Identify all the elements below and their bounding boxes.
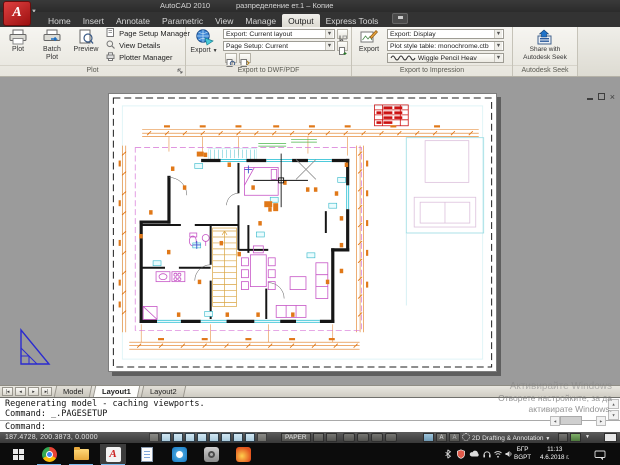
ucs-icon <box>14 327 52 367</box>
select-objects-icon[interactable] <box>337 29 348 39</box>
export-impression-panel: Export Export: Display▼ Plot style table… <box>352 27 513 76</box>
chevron-down-icon[interactable]: ▼ <box>494 54 502 62</box>
printer-icon <box>9 29 27 45</box>
lineweight-toggle[interactable] <box>245 433 255 442</box>
coordinate-readout[interactable]: 187.4728, 200.3873, 0.0000 <box>5 434 98 441</box>
scroll-right-icon[interactable]: ▸ <box>596 416 606 426</box>
plot-panel: Plot Batch Plot <box>0 27 186 76</box>
prev-tab-button[interactable]: ◂ <box>15 387 26 396</box>
app-title: AutoCAD 2010 <box>160 0 210 12</box>
autocad-window: AutoCAD 2010 разпределение ет.1 – Копие … <box>0 0 620 465</box>
export-dwf-pdf-panel: Export ▼ Export: Current layout▼ Page Se… <box>186 27 352 76</box>
stairs <box>213 228 237 306</box>
drawing-window-controls: × <box>587 93 615 102</box>
headset-icon[interactable] <box>482 449 492 459</box>
tab-output[interactable]: Output <box>282 14 320 27</box>
export-settings-icon[interactable] <box>239 53 251 63</box>
status-menu-chevron-icon[interactable]: ▼ <box>585 434 590 440</box>
scroll-left-icon[interactable]: ◂ <box>550 416 560 426</box>
pan-icon[interactable] <box>343 433 355 442</box>
tab-layout2[interactable]: Layout2 <box>141 386 186 397</box>
page-setup-manager-item[interactable]: Page Setup Manager <box>106 28 190 40</box>
onedrive-cloud-icon[interactable] <box>469 449 480 459</box>
batch-plot-button[interactable]: Batch Plot <box>36 28 68 62</box>
picture-pencil-icon <box>360 29 378 45</box>
export-dwf-panel-footer[interactable]: Export to DWF/PDF <box>186 65 351 76</box>
restore-icon[interactable] <box>598 93 605 100</box>
plot-panel-footer[interactable]: Plot <box>0 65 185 76</box>
status-bar: 187.4728, 200.3873, 0.0000 PAPER A A 2D … <box>0 432 620 443</box>
view-details-item[interactable]: View Details <box>106 40 160 52</box>
osnap-toggle[interactable] <box>197 433 207 442</box>
tab-express-tools[interactable]: Express Tools <box>320 14 385 27</box>
share-with-autodesk-seek-button[interactable]: Share with Autodesk Seek <box>515 28 575 62</box>
command-window[interactable]: Regenerating model - caching viewports. … <box>0 397 620 432</box>
wiggle-line-icon <box>390 54 416 62</box>
taskbar-explorer-icon[interactable] <box>68 444 94 464</box>
language-indicator[interactable]: БГРBGPT <box>514 446 531 462</box>
batch-plot-icon <box>43 29 61 45</box>
last-tab-button[interactable]: ▸| <box>41 387 52 396</box>
taskbar-messenger-icon[interactable] <box>166 444 192 464</box>
impression-export-dropdown[interactable]: Export: Display▼ <box>387 29 504 39</box>
taskbar-notepad-icon[interactable] <box>134 444 160 464</box>
chevron-down-icon[interactable]: ▼ <box>494 42 502 50</box>
taskbar-clock[interactable]: 11:134.6.2018 г. <box>540 446 570 462</box>
layout-paper[interactable] <box>108 93 497 372</box>
chevron-down-icon[interactable]: ▼ <box>325 42 333 50</box>
close-icon[interactable]: × <box>610 93 615 102</box>
plot-button[interactable]: Plot <box>3 28 33 54</box>
drawing-area[interactable]: × <box>0 77 620 385</box>
annotation-visibility-icon[interactable] <box>423 433 434 442</box>
showmotion-icon[interactable] <box>385 433 397 442</box>
export-impression-panel-footer[interactable]: Export to Impression <box>352 65 512 76</box>
clean-screen-button[interactable] <box>604 433 617 442</box>
chevron-down-icon[interactable]: ▼ <box>325 30 333 38</box>
paper-model-button[interactable]: PAPER <box>281 433 311 442</box>
tab-layout1[interactable]: Layout1 <box>93 386 140 397</box>
tab-parametric[interactable]: Parametric <box>156 14 209 27</box>
tab-insert[interactable]: Insert <box>77 14 110 27</box>
taskbar-chrome-icon[interactable] <box>36 444 62 464</box>
quick-properties-toggle[interactable] <box>257 433 267 442</box>
dimension-ticks <box>122 131 473 347</box>
ribbon-filler <box>578 27 620 76</box>
page-setup-manager-icon <box>106 28 115 37</box>
ribbon-tab-bar: Home Insert Annotate Parametric View Man… <box>0 12 620 27</box>
plotter-manager-icon <box>106 52 115 61</box>
polar-toggle[interactable] <box>185 433 195 442</box>
quick-view-layouts-icon[interactable] <box>313 433 324 442</box>
autoscale-icon[interactable]: A <box>436 433 447 442</box>
layout-tab-bar: |◂ ◂ ▸ ▸| Model Layout1 Layout2 <box>0 385 620 397</box>
red-title-block <box>374 105 408 126</box>
pen-style-dropdown[interactable]: Wiggle Pencil Heav▼ <box>387 53 504 63</box>
command-prompt[interactable]: Command: <box>5 422 46 432</box>
zoom-icon[interactable] <box>357 433 369 442</box>
grid-toggle[interactable] <box>161 433 171 442</box>
windows-logo-icon <box>13 449 24 460</box>
command-history-line: Command: _.PAGESETUP <box>5 409 107 419</box>
tab-manage[interactable]: Manage <box>239 14 282 27</box>
preview-button[interactable]: Preview <box>70 28 102 54</box>
add-page-icon[interactable] <box>337 41 348 51</box>
tab-home[interactable]: Home <box>42 14 77 27</box>
scroll-up-icon[interactable]: ▴ <box>608 399 619 409</box>
taskbar-gray-app-icon[interactable] <box>198 444 224 464</box>
volume-icon[interactable] <box>504 449 514 459</box>
export-impression-button[interactable]: Export <box>354 28 384 54</box>
command-vscrollbar[interactable]: ▴ ▾ <box>608 399 619 420</box>
command-hscrollbar[interactable]: ◂ ▸ <box>550 416 606 425</box>
toolbar-lock-icon[interactable] <box>558 433 568 442</box>
workspace-switcher[interactable]: 2D Drafting & Annotation ▼ <box>462 433 550 442</box>
taskbar-orange-app-icon[interactable] <box>230 444 256 464</box>
plotter-manager-item[interactable]: Plotter Manager <box>106 52 172 64</box>
skylight-cross <box>296 160 316 180</box>
scroll-down-icon[interactable]: ▾ <box>608 410 619 420</box>
start-button[interactable] <box>5 443 31 465</box>
autodesk-seek-icon <box>535 29 555 45</box>
bluetooth-icon[interactable] <box>443 449 453 459</box>
command-splitter[interactable] <box>0 420 620 421</box>
application-menu-button[interactable]: A <box>3 1 31 26</box>
floor-plan-drawing <box>109 94 496 371</box>
ducs-toggle[interactable] <box>221 433 231 442</box>
steering-wheel-icon[interactable] <box>371 433 383 442</box>
ribbon-minimize-button[interactable] <box>392 13 408 24</box>
autodesk-seek-panel: Share with Autodesk Seek Autodesk Seek <box>513 27 578 76</box>
minimize-icon[interactable] <box>587 93 593 100</box>
annotation-scale-icon[interactable]: A <box>449 433 460 442</box>
scroll-thumb[interactable] <box>560 416 582 425</box>
document-title: разпределение ет.1 – Копие <box>236 0 333 12</box>
workspace-gear-icon <box>462 433 470 441</box>
export-globe-icon <box>195 29 214 46</box>
otrack-toggle[interactable] <box>209 433 219 442</box>
first-tab-button[interactable]: |◂ <box>2 387 13 396</box>
detail-viewport <box>406 138 483 306</box>
view-details-icon <box>106 40 115 49</box>
dimension-text-marks <box>119 125 440 340</box>
dyn-toggle[interactable] <box>233 433 243 442</box>
next-tab-button[interactable]: ▸ <box>28 387 39 396</box>
level-markers <box>193 165 253 248</box>
action-center-icon[interactable] <box>594 450 606 460</box>
export-dwf-button[interactable]: Export ▼ <box>188 28 220 55</box>
ortho-toggle[interactable] <box>173 433 183 442</box>
status-tray-icon[interactable] <box>570 433 581 442</box>
tab-view[interactable]: View <box>209 14 239 27</box>
dialog-launcher-icon[interactable] <box>177 68 183 74</box>
tab-annotate[interactable]: Annotate <box>110 14 156 27</box>
security-shield-icon[interactable] <box>456 449 466 459</box>
snap-toggle[interactable] <box>149 433 159 442</box>
export-target-dropdown[interactable]: Export: Current layout▼ <box>223 29 335 39</box>
preview-dwf-icon[interactable] <box>225 53 237 63</box>
autodesk-seek-panel-footer[interactable]: Autodesk Seek <box>513 65 577 76</box>
titlebar: AutoCAD 2010 разпределение ет.1 – Копие <box>0 0 620 12</box>
command-history-line: Regenerating model - caching viewports. <box>5 399 205 409</box>
taskbar-autocad-icon[interactable]: A <box>100 444 126 464</box>
page-setup-dropdown[interactable]: Page Setup: Current▼ <box>223 41 335 51</box>
plot-style-table-dropdown[interactable]: Plot style table: monochrome.ctb▼ <box>387 41 504 51</box>
preview-icon <box>78 29 94 45</box>
wifi-icon[interactable] <box>493 449 503 459</box>
ribbon: Plot Batch Plot <box>0 27 620 77</box>
quick-view-drawings-icon[interactable] <box>326 433 337 442</box>
printable-margin <box>113 98 491 367</box>
windows-taskbar: A БГРBGPT 11:134.6.2018 г. <box>0 443 620 465</box>
chevron-down-icon[interactable]: ▼ <box>494 30 502 38</box>
tab-model[interactable]: Model <box>54 386 93 397</box>
